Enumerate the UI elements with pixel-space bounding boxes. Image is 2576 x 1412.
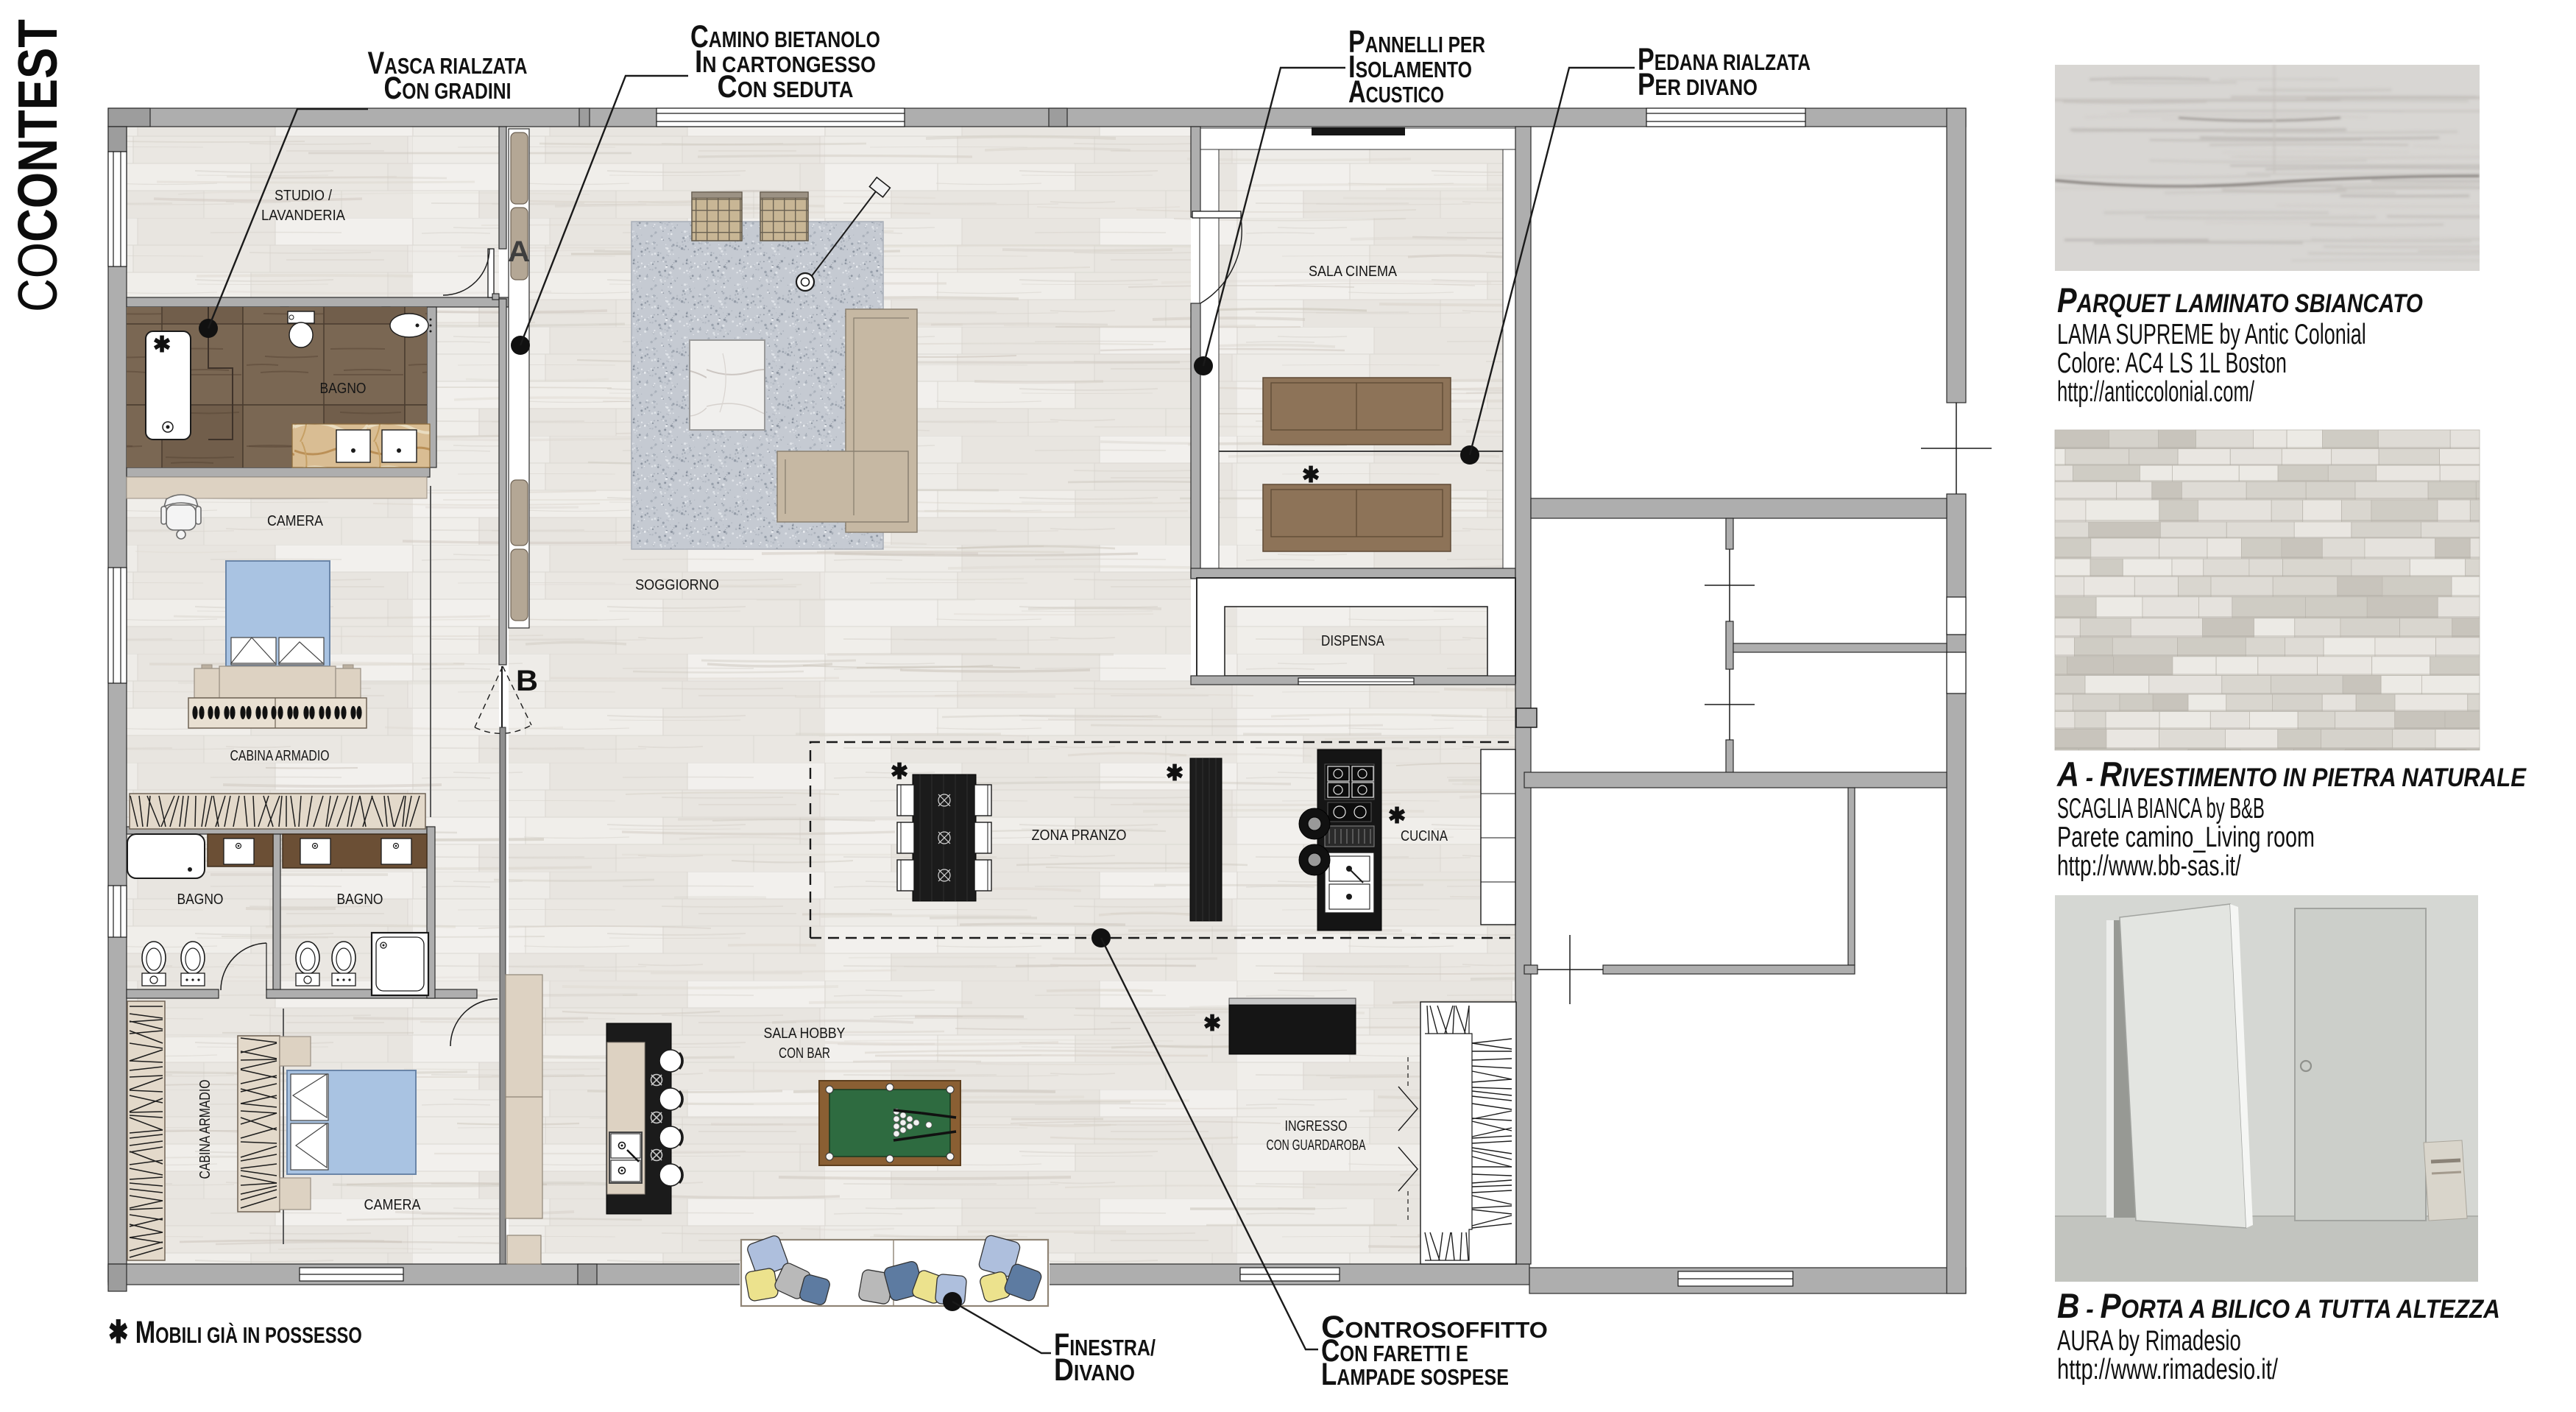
svg-text:B: B <box>516 664 538 697</box>
svg-text:CAMERA: CAMERA <box>267 513 323 529</box>
svg-text:LAMA SUPREME by Antic Colonial: LAMA SUPREME by Antic Colonial <box>2057 319 2366 350</box>
svg-text:✱: ✱ <box>1302 463 1320 487</box>
svg-text:INGRESSO: INGRESSO <box>1285 1118 1348 1134</box>
svg-text:ZONA PRANZO: ZONA PRANZO <box>1032 827 1127 844</box>
svg-text:CON GUARDAROBA: CON GUARDAROBA <box>1267 1136 1366 1153</box>
svg-text:BAGNO: BAGNO <box>337 891 383 907</box>
svg-text:AURA by Rimadesio: AURA by Rimadesio <box>2057 1324 2241 1357</box>
svg-text:✱: ✱ <box>1203 1012 1222 1036</box>
svg-text:CON BAR: CON BAR <box>779 1045 830 1061</box>
svg-text:CABINA ARMADIO: CABINA ARMADIO <box>197 1080 213 1179</box>
svg-text:✱: ✱ <box>1388 804 1406 828</box>
svg-text:SALA CINEMA: SALA CINEMA <box>1309 264 1397 280</box>
svg-text:Parete camino_Living room: Parete camino_Living room <box>2057 822 2315 853</box>
svg-text:SOGGIORNO: SOGGIORNO <box>635 577 719 593</box>
svg-text:http://anticcolonial.com/: http://anticcolonial.com/ <box>2057 375 2255 408</box>
svg-text:BAGNO: BAGNO <box>320 380 367 396</box>
svg-text:http://www.bb-sas.it/: http://www.bb-sas.it/ <box>2057 850 2241 883</box>
svg-text:✱: ✱ <box>1166 761 1184 786</box>
svg-text:DISPENSA: DISPENSA <box>1321 632 1384 649</box>
svg-text:CUCINA: CUCINA <box>1401 827 1448 844</box>
svg-text:STUDIO /: STUDIO / <box>275 188 333 204</box>
svg-text:CAMERA: CAMERA <box>364 1197 421 1213</box>
svg-text:SALA HOBBY: SALA HOBBY <box>764 1025 846 1041</box>
svg-text:✱: ✱ <box>153 333 171 357</box>
svg-text:COCONTEST: COCONTEST <box>7 19 68 312</box>
svg-text:SCAGLIA BIANCA by B&B: SCAGLIA BIANCA by B&B <box>2057 792 2265 824</box>
svg-text:http://www.rimadesio.it/: http://www.rimadesio.it/ <box>2057 1354 2278 1385</box>
svg-text:✱: ✱ <box>891 760 909 784</box>
svg-text:CABINA ARMADIO: CABINA ARMADIO <box>230 747 330 763</box>
svg-text:LAVANDERIA: LAVANDERIA <box>261 208 345 224</box>
svg-text:A: A <box>508 235 530 268</box>
svg-text:BAGNO: BAGNO <box>177 891 224 907</box>
